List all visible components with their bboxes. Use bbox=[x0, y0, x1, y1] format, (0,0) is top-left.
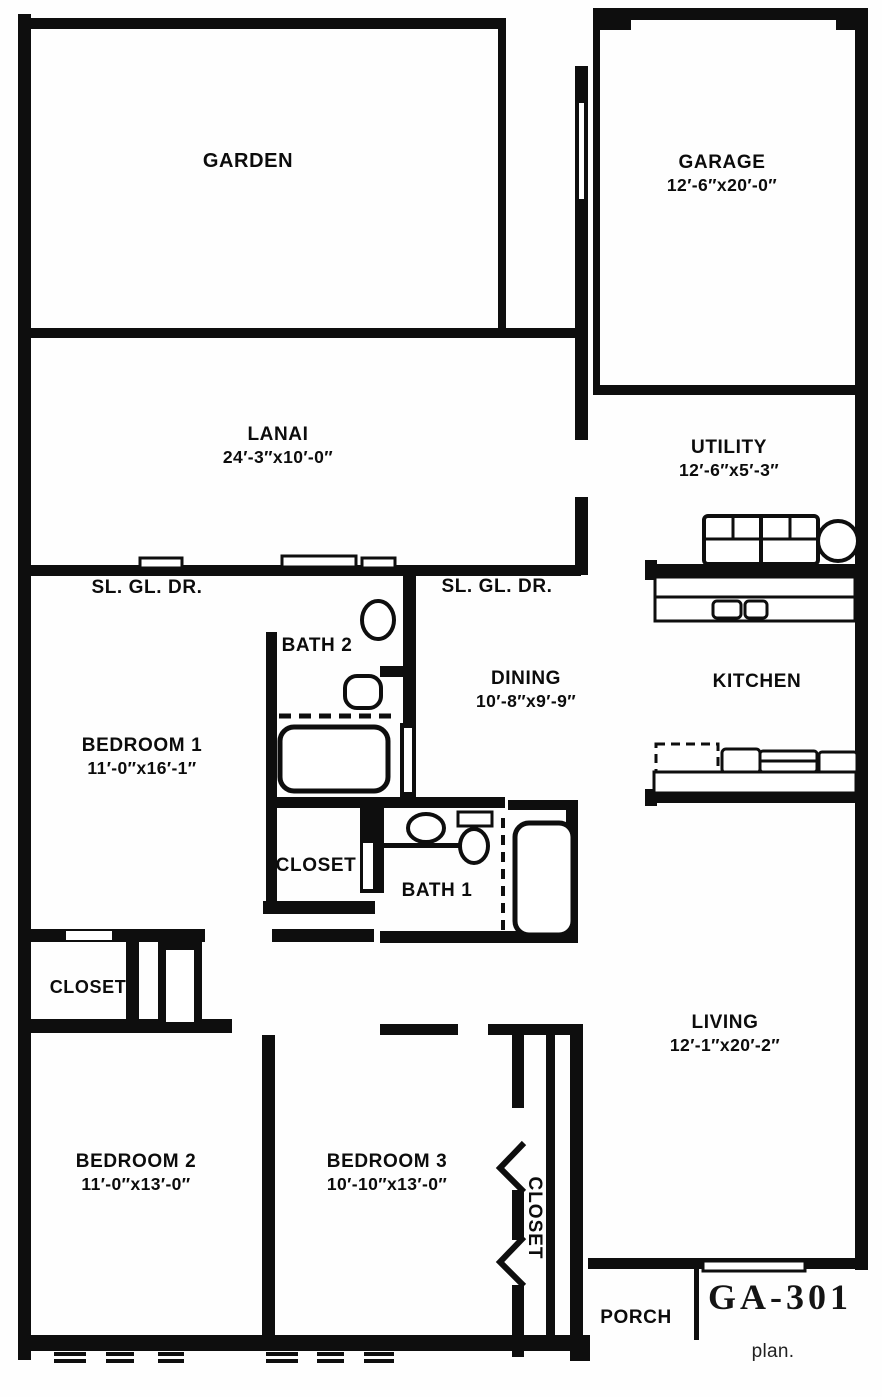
room-name: BEDROOM 1 bbox=[82, 735, 202, 756]
room-dims: 10′-10″x13′-0″ bbox=[327, 1173, 447, 1195]
room-name: DINING bbox=[491, 668, 561, 689]
room-name: BATH 1 bbox=[402, 880, 473, 901]
wall bbox=[575, 199, 588, 440]
room-dims: 12′-1″x20′-2″ bbox=[670, 1034, 780, 1056]
door-slot-icon bbox=[363, 843, 373, 889]
wall bbox=[18, 14, 31, 1360]
door-label-sl-gl-dr-right: SL. GL. DR. bbox=[441, 576, 552, 598]
toilet-icon bbox=[408, 814, 444, 842]
room-label-bath2: BATH 2 bbox=[282, 635, 353, 657]
bathtub-icon bbox=[515, 823, 573, 935]
refrigerator-icon bbox=[656, 744, 718, 774]
wall bbox=[855, 8, 868, 1270]
wall bbox=[593, 385, 868, 395]
room-name: BATH 2 bbox=[282, 635, 353, 656]
room-name: LANAI bbox=[247, 424, 308, 445]
wall bbox=[584, 103, 588, 199]
wall bbox=[575, 103, 579, 199]
range-icon bbox=[722, 749, 760, 773]
door-label: SL. GL. DR. bbox=[441, 576, 552, 597]
wall bbox=[267, 797, 373, 808]
room-name: GARAGE bbox=[678, 152, 765, 173]
wall bbox=[570, 1035, 583, 1357]
window-icon bbox=[106, 1359, 134, 1363]
room-label-living: LIVING 12′-1″x20′-2″ bbox=[670, 1012, 780, 1056]
room-name: LIVING bbox=[692, 1012, 759, 1033]
room-label-porch: PORCH bbox=[600, 1307, 672, 1329]
room-name: PORCH bbox=[600, 1307, 672, 1328]
room-label-dining: DINING 10′-8″x9′-9″ bbox=[476, 668, 576, 712]
wall bbox=[263, 901, 375, 914]
wall bbox=[575, 66, 588, 103]
room-label-closet-bedroom3: CLOSET bbox=[523, 1176, 545, 1259]
kitchen-sink-icon bbox=[713, 601, 741, 618]
wall bbox=[488, 1024, 583, 1035]
room-dims: 11′-0″x16′-1″ bbox=[82, 757, 202, 779]
room-label-bedroom3: BEDROOM 3 10′-10″x13′-0″ bbox=[327, 1151, 447, 1195]
door-leaf-icon bbox=[166, 950, 194, 1022]
window-icon bbox=[266, 1352, 298, 1356]
wall bbox=[498, 20, 506, 332]
sink-icon bbox=[345, 676, 381, 708]
utility-fixtures bbox=[704, 516, 858, 564]
sliding-doors bbox=[140, 556, 805, 1271]
room-dims: 10′-8″x9′-9″ bbox=[476, 690, 576, 712]
plan-code-text: GA-301 bbox=[708, 1277, 852, 1317]
window-slots bbox=[66, 931, 112, 940]
sliding-door-icon bbox=[282, 556, 356, 567]
wall bbox=[593, 8, 600, 394]
window-icon bbox=[364, 1359, 394, 1363]
bifold-door-icon bbox=[500, 1143, 524, 1192]
toilet-icon bbox=[362, 601, 394, 639]
room-label-bath1: BATH 1 bbox=[402, 880, 473, 902]
wall bbox=[18, 1335, 590, 1351]
window-icon bbox=[317, 1352, 344, 1356]
window-icon bbox=[106, 1352, 134, 1356]
bottom-windows bbox=[54, 1352, 394, 1363]
room-dims: 12′-6″x5′-3″ bbox=[679, 459, 779, 481]
wall bbox=[30, 929, 205, 942]
water-heater-icon bbox=[818, 521, 858, 561]
sink-icon bbox=[460, 829, 488, 863]
caption-text: plan. bbox=[752, 1341, 795, 1362]
room-name: CLOSET bbox=[524, 1176, 545, 1259]
door-label: SL. GL. DR. bbox=[91, 577, 202, 598]
window-icon bbox=[158, 1352, 184, 1356]
kitchen-lower-counter bbox=[654, 744, 857, 793]
window-icon bbox=[54, 1359, 86, 1363]
wall bbox=[575, 497, 588, 575]
wall bbox=[30, 18, 506, 29]
room-label-lanai: LANAI 24′-3″x10′-0″ bbox=[223, 424, 333, 468]
room-name: BEDROOM 3 bbox=[327, 1151, 447, 1172]
kitchen-top-counter bbox=[655, 577, 855, 621]
wall bbox=[836, 8, 868, 30]
bifold-door-icon bbox=[500, 1237, 524, 1286]
wall bbox=[597, 8, 631, 30]
wall bbox=[380, 1024, 458, 1035]
wall bbox=[383, 797, 505, 808]
sliding-door-icon bbox=[140, 558, 182, 568]
wall bbox=[546, 1035, 555, 1347]
room-label-utility: UTILITY 12′-6″x5′-3″ bbox=[679, 437, 779, 481]
counter bbox=[654, 772, 856, 793]
room-label-closet-left: CLOSET bbox=[50, 976, 127, 998]
front-door-icon bbox=[703, 1261, 805, 1271]
wall bbox=[593, 8, 868, 20]
room-name: KITCHEN bbox=[713, 671, 802, 692]
room-label-kitchen: KITCHEN bbox=[713, 671, 802, 693]
appliance-icon bbox=[819, 752, 857, 773]
room-name: UTILITY bbox=[691, 437, 767, 458]
room-label-garden: GARDEN bbox=[203, 150, 293, 172]
wall bbox=[126, 942, 139, 1030]
room-dims: 11′-0″x13′-0″ bbox=[76, 1173, 196, 1195]
room-label-closet-hall: CLOSET bbox=[276, 855, 357, 877]
window-icon bbox=[66, 931, 112, 940]
wall bbox=[512, 1035, 524, 1108]
window-icon bbox=[158, 1359, 184, 1363]
wall bbox=[570, 1335, 590, 1361]
sliding-door-icon bbox=[362, 558, 395, 568]
room-label-bedroom1: BEDROOM 1 11′-0″x16′-1″ bbox=[82, 735, 202, 779]
window-icon bbox=[364, 1352, 394, 1356]
caption-plan: plan. bbox=[752, 1341, 795, 1363]
wall bbox=[403, 568, 416, 723]
window-icon bbox=[54, 1352, 86, 1356]
plan-code: GA-301 bbox=[708, 1276, 852, 1318]
room-name: BEDROOM 2 bbox=[76, 1151, 196, 1172]
room-label-garage: GARAGE 12′-6″x20′-0″ bbox=[667, 152, 777, 196]
wall bbox=[262, 1035, 275, 1335]
room-dims: 24′-3″x10′-0″ bbox=[223, 446, 333, 468]
bathtub-icon bbox=[280, 727, 388, 791]
bath2-fixtures bbox=[279, 601, 404, 791]
floor-plan: GARDEN GARAGE 12′-6″x20′-0″ LANAI 24′-3″… bbox=[0, 0, 882, 1397]
room-label-bedroom2: BEDROOM 2 11′-0″x13′-0″ bbox=[76, 1151, 196, 1195]
window-icon bbox=[266, 1359, 298, 1363]
door-label-sl-gl-dr-left: SL. GL. DR. bbox=[91, 577, 202, 599]
bath1-fixtures bbox=[384, 812, 573, 935]
door-leaf-icon bbox=[404, 728, 412, 792]
room-name: CLOSET bbox=[276, 855, 357, 876]
wall bbox=[272, 929, 374, 942]
wall bbox=[694, 1269, 699, 1340]
wall bbox=[30, 328, 581, 338]
sink-icon bbox=[458, 812, 492, 826]
window-icon bbox=[317, 1359, 344, 1363]
sink-icon bbox=[380, 666, 404, 677]
room-name: CLOSET bbox=[50, 977, 127, 997]
kitchen-sink-icon bbox=[745, 601, 767, 618]
room-name: GARDEN bbox=[203, 150, 293, 172]
room-dims: 12′-6″x20′-0″ bbox=[667, 174, 777, 196]
